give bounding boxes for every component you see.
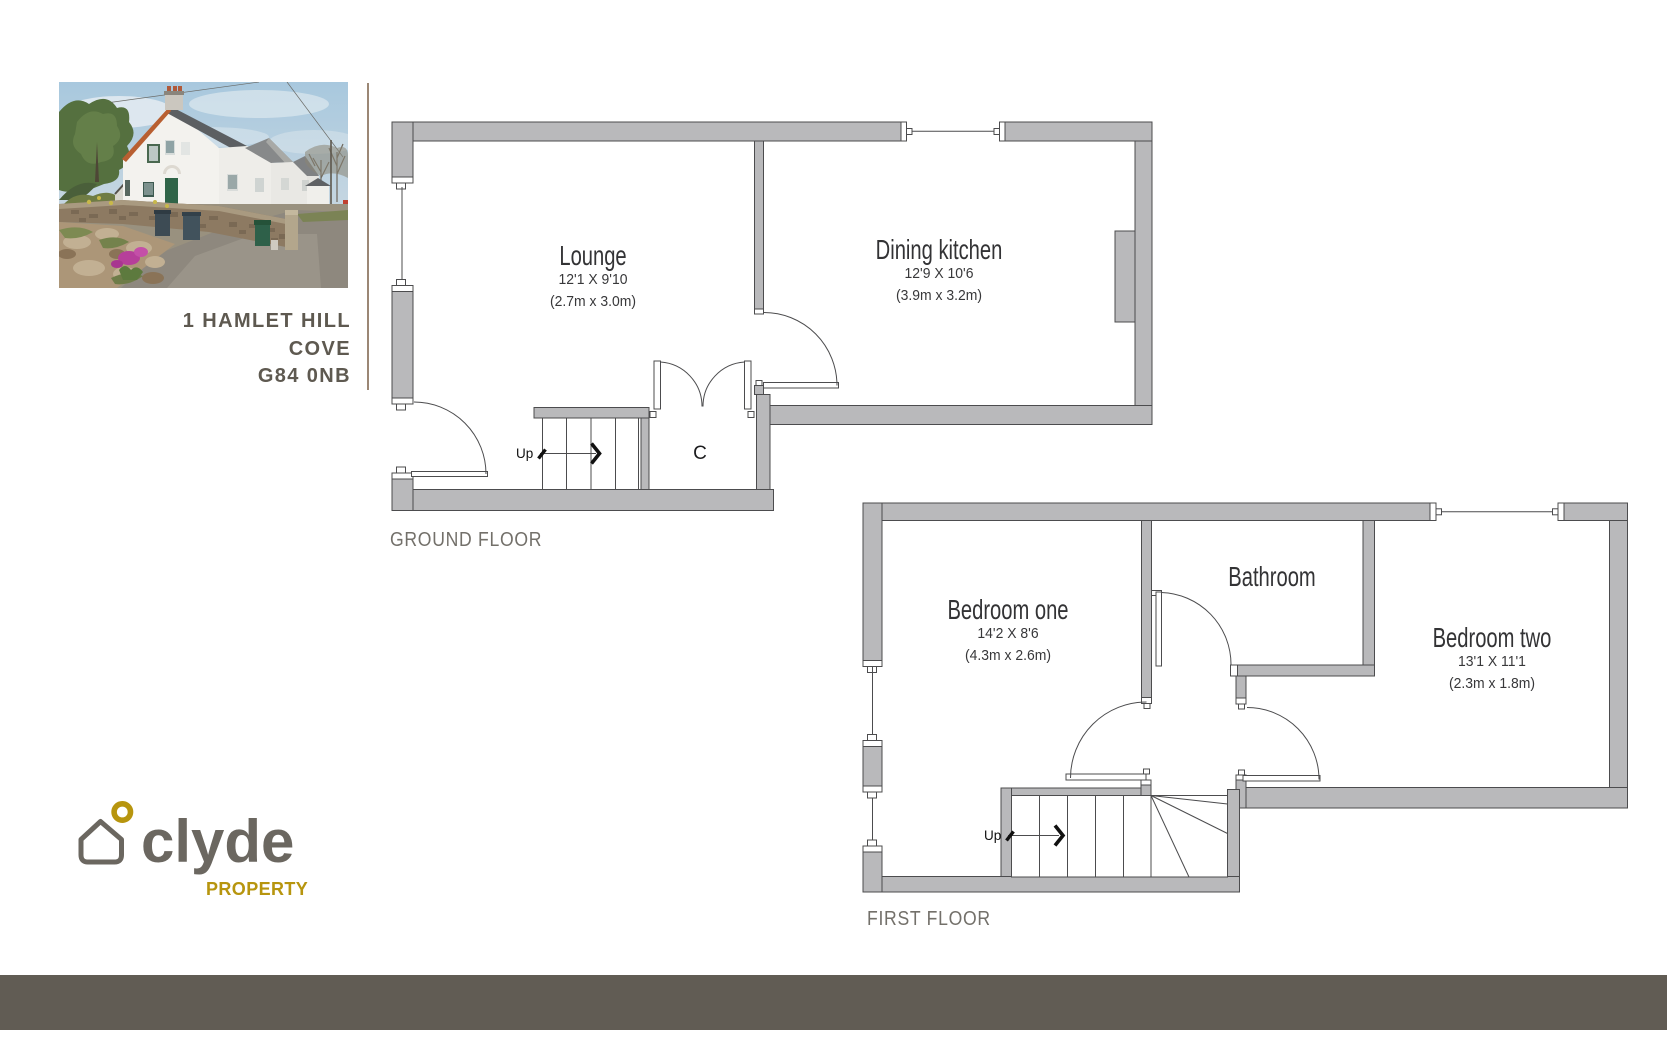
svg-text:PROPERTY: PROPERTY — [206, 879, 308, 899]
svg-text:Up: Up — [984, 828, 1001, 843]
svg-text:Up: Up — [516, 446, 533, 461]
svg-text:clyde: clyde — [141, 808, 294, 875]
